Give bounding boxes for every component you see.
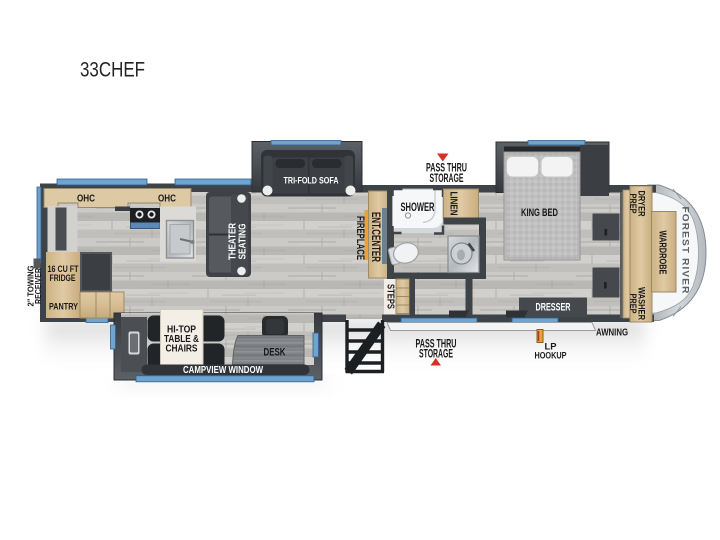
svg-text:STORAGE: STORAGE	[430, 171, 464, 185]
svg-text:SEATING: SEATING	[238, 223, 249, 259]
svg-text:PREP: PREP	[627, 194, 638, 214]
svg-text:OHC: OHC	[77, 193, 95, 205]
svg-text:33CHEF: 33CHEF	[80, 58, 145, 82]
svg-text:AWNING: AWNING	[596, 327, 628, 339]
svg-text:FOREST RIVER: FOREST RIVER	[681, 207, 691, 295]
svg-text:WARDROBE: WARDROBE	[657, 231, 668, 275]
svg-text:LINEN: LINEN	[448, 192, 460, 216]
svg-text:STEPS: STEPS	[385, 284, 396, 309]
svg-text:CAMPVIEW WINDOW: CAMPVIEW WINDOW	[183, 365, 264, 376]
svg-text:DRESSER: DRESSER	[536, 302, 571, 314]
svg-text:RECEIVER: RECEIVER	[33, 267, 43, 304]
svg-text:HOOKUP: HOOKUP	[535, 350, 567, 361]
svg-text:PREP: PREP	[627, 294, 638, 314]
svg-text:PANTRY: PANTRY	[49, 301, 79, 312]
svg-text:FIREPLACE: FIREPLACE	[354, 216, 366, 260]
svg-text:DESK: DESK	[264, 347, 286, 359]
svg-text:OHC: OHC	[158, 193, 176, 205]
svg-text:KING BED: KING BED	[521, 207, 558, 219]
svg-text:FRIDGE: FRIDGE	[50, 273, 76, 283]
svg-text:SHOWER: SHOWER	[401, 202, 435, 214]
svg-text:TRI-FOLD SOFA: TRI-FOLD SOFA	[284, 175, 339, 186]
svg-text:CHAIRS: CHAIRS	[166, 344, 198, 355]
svg-text:ENT.CENTER: ENT.CENTER	[369, 212, 381, 262]
